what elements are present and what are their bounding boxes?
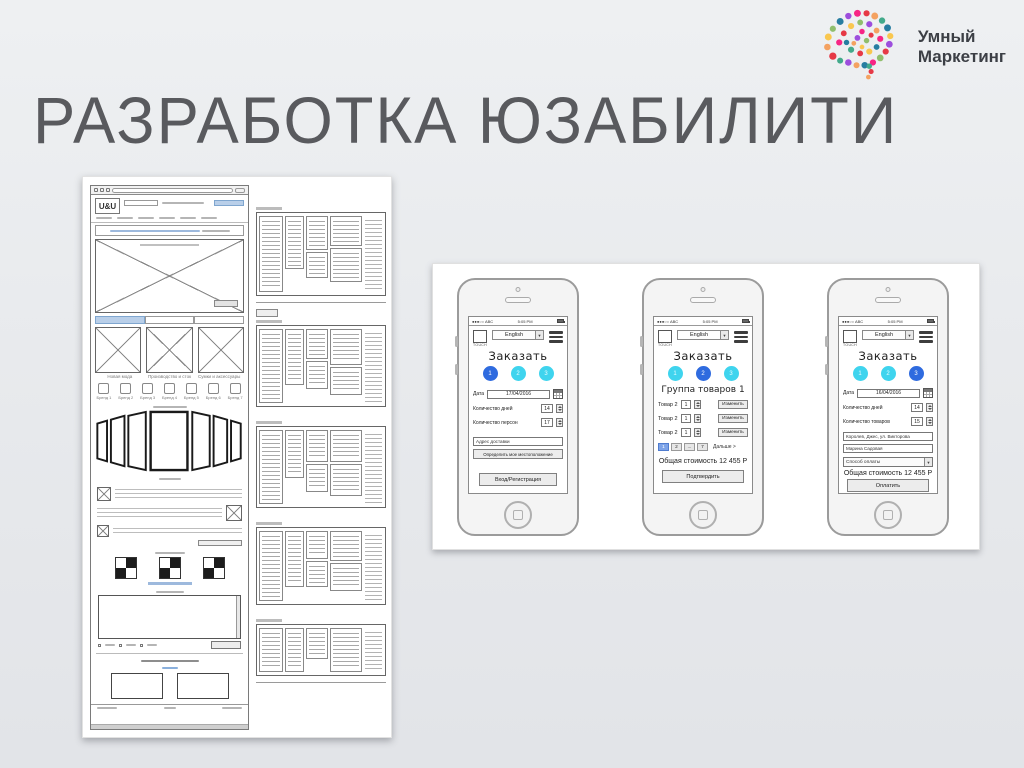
logo-box <box>843 330 857 343</box>
browser-statusbar <box>91 724 248 729</box>
volume-button <box>455 364 458 375</box>
stepper-control[interactable] <box>926 417 933 426</box>
nav-item[interactable] <box>180 217 196 219</box>
days-input[interactable]: 14 <box>911 403 923 412</box>
text-lines-placeholder <box>113 528 242 535</box>
stack-placeholder <box>330 531 362 601</box>
lines-placeholder <box>364 628 383 672</box>
hero-image-placeholder <box>95 239 244 313</box>
thumbnail-placeholder <box>97 525 109 537</box>
thumbnail-placeholder <box>97 487 111 501</box>
menu-icon[interactable] <box>734 330 748 343</box>
stepper-control[interactable] <box>556 404 563 413</box>
brand-item[interactable]: Бренд 5 <box>181 383 201 400</box>
app-logo: TOUCH <box>473 330 487 347</box>
stack-placeholder <box>330 430 362 504</box>
contact-blocks <box>91 673 248 699</box>
qty-input[interactable]: 1 <box>681 414 691 423</box>
list-placeholder <box>330 367 362 395</box>
language-select[interactable]: English ▼ <box>862 330 914 340</box>
section-label-line <box>91 550 248 555</box>
list-placeholder <box>259 531 283 601</box>
speaker-slot <box>690 297 716 303</box>
nav-item[interactable] <box>201 217 217 219</box>
section-label-line <box>91 404 248 409</box>
confirm-button[interactable]: Подтвердить <box>662 470 744 483</box>
brands-row: Бренд 1 Бренд 2 Бренд 3 Бренд 4 Бренд 5 … <box>94 383 245 400</box>
brand-logo-placeholder <box>142 383 153 394</box>
image-caption: Новая мода <box>95 374 145 379</box>
product-label: Товар 2 <box>658 430 678 436</box>
chevron-down-icon: ▼ <box>535 331 543 339</box>
change-button[interactable]: Изменить <box>718 414 748 423</box>
brand-name-line1: Умный <box>918 27 1006 47</box>
speaker-slot <box>875 297 901 303</box>
carrier-signal: ●●●○○ ABC <box>472 319 493 324</box>
step-circle[interactable]: 3 <box>539 366 554 381</box>
product-label: Товар 2 <box>658 402 678 408</box>
days-row: Количество дней 14 <box>473 404 563 413</box>
calendar-icon[interactable] <box>923 388 933 398</box>
volume-button <box>455 336 458 347</box>
pay-button[interactable]: Оплатить <box>847 479 929 492</box>
tab[interactable] <box>194 316 244 324</box>
step-circle[interactable]: 1 <box>668 366 683 381</box>
brand-name: Умный Маркетинг <box>918 27 1006 66</box>
brand-item[interactable]: Бренд 4 <box>160 383 180 400</box>
list-placeholder <box>285 216 304 269</box>
divider <box>256 302 386 303</box>
camera-dot <box>701 287 706 292</box>
nav-item[interactable] <box>96 217 112 219</box>
brand-name-line2: Маркетинг <box>918 47 1006 67</box>
product-row: Товар 2 1 Изменить <box>658 400 748 409</box>
lines-placeholder <box>364 329 383 403</box>
field-label: Количество персон <box>473 420 538 426</box>
home-button[interactable] <box>689 501 717 529</box>
step-circle[interactable]: 2 <box>511 366 526 381</box>
volume-button <box>825 336 828 347</box>
total-price: Общая стоимость 12 455 Р <box>843 470 933 477</box>
home-square-icon <box>698 510 708 520</box>
list-placeholder <box>259 329 283 403</box>
list-placeholder <box>330 216 362 246</box>
name-input[interactable]: Марина Садовая <box>843 444 933 453</box>
home-button[interactable] <box>504 501 532 529</box>
wireframe-sheet: U&U <box>82 176 392 738</box>
qty-input[interactable]: 1 <box>681 428 691 437</box>
tab-active[interactable] <box>95 316 145 324</box>
step-circle[interactable]: 2 <box>881 366 896 381</box>
stack-placeholder <box>306 329 328 403</box>
portfolio-thumbnails <box>91 557 248 579</box>
volume-button <box>640 364 643 375</box>
screen-title: Заказать <box>843 349 933 363</box>
step-indicator: 1 2 3 <box>843 366 933 381</box>
text-lines-placeholder <box>97 508 222 518</box>
date-row: Дата 16/04/2016 <box>843 388 933 398</box>
persons-input[interactable]: 17 <box>541 418 553 427</box>
nav-item[interactable] <box>159 217 175 219</box>
teaser-images <box>95 327 244 373</box>
wireframe-spec-column <box>256 177 386 739</box>
home-button[interactable] <box>874 501 902 529</box>
lines-placeholder <box>364 430 383 504</box>
banner-text-line <box>110 230 200 232</box>
list-placeholder <box>306 329 328 359</box>
more-button[interactable] <box>198 540 242 546</box>
chevron-down-icon: ▼ <box>720 331 728 339</box>
checkbox[interactable] <box>98 644 101 647</box>
persons-row: Количество персон 17 <box>473 418 563 427</box>
search-input[interactable] <box>124 200 158 206</box>
page-button[interactable]: 7 <box>697 443 708 451</box>
list-placeholder <box>330 628 362 672</box>
carrier-signal: ●●●○○ ABC <box>657 319 678 324</box>
language-value: English <box>863 332 905 338</box>
app-header: TOUCH English ▼ <box>843 330 933 347</box>
image-placeholder <box>95 327 141 373</box>
phone-mockup-step3: ●●●○○ ABC 5:05 PM TOUCH English ▼ Заказа… <box>827 278 949 536</box>
spec-block <box>256 522 386 605</box>
callback-link-line[interactable] <box>91 665 248 670</box>
list-placeholder <box>285 531 304 587</box>
brand-label: Бренд 5 <box>184 395 199 400</box>
checker-thumbnail <box>115 557 137 579</box>
screen-title: Заказать <box>473 349 563 363</box>
payment-method-value: Способ оплаты <box>844 460 924 465</box>
image-captions: Новая мода Производство и сток Сумки и а… <box>95 374 244 379</box>
spec-label-line <box>256 207 282 210</box>
checker-thumbnail <box>203 557 225 579</box>
stack-placeholder <box>306 430 328 504</box>
list-placeholder <box>306 252 328 278</box>
brand-logo-placeholder <box>98 383 109 394</box>
stepper-control[interactable] <box>556 418 563 427</box>
list-placeholder <box>259 216 283 292</box>
brand-label: Бренд 3 <box>140 395 155 400</box>
change-button[interactable]: Изменить <box>718 428 748 437</box>
brand-item[interactable]: Бренд 3 <box>138 383 158 400</box>
spec-label-line <box>256 421 282 424</box>
field-label: Количество дней <box>843 405 908 411</box>
window-control-icon <box>100 188 104 192</box>
list-placeholder <box>259 628 283 672</box>
date-input[interactable]: 17/04/2016 <box>487 390 550 399</box>
stack-placeholder <box>306 216 328 292</box>
list-placeholder <box>306 430 328 462</box>
field-label: Дата <box>843 390 854 396</box>
banner-text-line <box>202 230 230 232</box>
camera-dot <box>886 287 891 292</box>
payment-method-select[interactable]: Способ оплаты ▼ <box>843 457 933 467</box>
pagination: 1 2 ... 7 Дальше > <box>658 443 748 451</box>
days-input[interactable]: 14 <box>541 404 553 413</box>
brain-logo-icon <box>816 6 908 88</box>
window-control-icon <box>94 188 98 192</box>
language-select[interactable]: English ▼ <box>677 330 729 340</box>
carrier-signal: ●●●○○ ABC <box>842 319 863 324</box>
battery-icon <box>742 319 749 323</box>
list-placeholder <box>330 430 362 462</box>
brand-logo-placeholder <box>186 383 197 394</box>
contact-box <box>111 673 163 699</box>
logo-label: TOUCH <box>843 343 857 347</box>
login-area[interactable] <box>214 198 244 206</box>
spec-box <box>256 212 386 296</box>
spec-block <box>256 320 386 407</box>
address-input[interactable]: Королев, Джес, ул. Викторова <box>843 432 933 441</box>
brand-label: Бренд 4 <box>162 395 177 400</box>
items-count-input[interactable]: 15 <box>911 417 923 426</box>
spec-box <box>256 325 386 407</box>
lines-placeholder <box>364 216 383 292</box>
page-button-active[interactable]: 1 <box>658 443 669 451</box>
stepper-control[interactable] <box>694 414 701 423</box>
home-square-icon <box>883 510 893 520</box>
send-button[interactable] <box>211 641 241 649</box>
stack-placeholder <box>306 531 328 601</box>
clock: 5:05 PM <box>888 319 903 324</box>
image-caption: Сумки и аксессуары <box>194 374 244 379</box>
about-row <box>97 525 242 537</box>
spec-box <box>256 426 386 508</box>
clock: 5:05 PM <box>703 319 718 324</box>
site-logo: U&U <box>95 198 120 214</box>
list-placeholder <box>306 531 328 559</box>
status-bar: ●●●○○ ABC 5:05 PM <box>839 317 937 326</box>
logo-box <box>473 330 487 343</box>
address-bar[interactable] <box>112 188 233 193</box>
app-logo: TOUCH <box>843 330 857 347</box>
main-nav[interactable] <box>91 215 248 223</box>
list-placeholder <box>306 628 328 659</box>
brand-logo-placeholder <box>230 383 241 394</box>
category-tabs[interactable] <box>95 316 244 324</box>
phone-screen: ●●●○○ ABC 5:05 PM TOUCH English ▼ Заказа… <box>468 316 568 494</box>
footer-text-line <box>97 707 117 709</box>
list-placeholder <box>306 216 328 250</box>
thumbnail-placeholder <box>226 505 242 521</box>
camera-dot <box>516 287 521 292</box>
list-placeholder <box>306 561 328 587</box>
nav-item[interactable] <box>117 217 133 219</box>
product-row: Товар 2 1 Изменить <box>658 428 748 437</box>
stepper-control[interactable] <box>694 400 701 409</box>
step-circle-active[interactable]: 1 <box>483 366 498 381</box>
days-row: Количество дней 14 <box>843 403 933 412</box>
window-close-icon <box>106 188 110 192</box>
list-placeholder <box>285 329 304 385</box>
phone-screen: ●●●○○ ABC 5:05 PM TOUCH English ▼ Заказа… <box>838 316 938 494</box>
search-area[interactable] <box>124 198 158 206</box>
section-chip <box>256 309 278 317</box>
volume-button <box>825 364 828 375</box>
divider <box>256 682 386 683</box>
language-value: English <box>678 332 720 338</box>
date-row: Дата 17/04/2016 <box>473 389 563 399</box>
brand-logo-placeholder <box>208 383 219 394</box>
phone-mockup-step2: ●●●○○ ABC 5:05 PM TOUCH English ▼ Заказа… <box>642 278 764 536</box>
step-indicator: 1 2 3 <box>473 366 563 381</box>
image-placeholder <box>198 327 244 373</box>
brand-logo-placeholder <box>164 383 175 394</box>
login-button[interactable] <box>214 200 244 206</box>
checkbox[interactable] <box>140 644 143 647</box>
list-placeholder <box>330 248 362 282</box>
spec-box <box>256 527 386 605</box>
feedback-textarea[interactable] <box>98 595 241 639</box>
checkbox[interactable] <box>119 644 122 647</box>
hero-caption-line <box>140 244 199 246</box>
about-row <box>97 505 242 521</box>
step-indicator: 1 2 3 <box>658 366 748 381</box>
page-ellipsis: ... <box>684 443 695 451</box>
site-footer <box>91 704 248 711</box>
battery-icon <box>927 319 934 323</box>
login-register-button[interactable]: Вход/Регистрация <box>479 473 557 486</box>
step-circle[interactable]: 1 <box>853 366 868 381</box>
contact-box <box>177 673 229 699</box>
list-placeholder <box>259 430 283 504</box>
questions-heading-line <box>91 658 248 663</box>
status-bar: ●●●○○ ABC 5:05 PM <box>654 317 752 326</box>
brand-label: Бренд 2 <box>118 395 133 400</box>
lines-placeholder <box>364 531 383 601</box>
logo-label: TOUCH <box>658 343 672 347</box>
menu-icon[interactable] <box>919 330 933 343</box>
scrollbar[interactable] <box>236 596 240 638</box>
language-value: English <box>493 332 535 338</box>
step-circle-active[interactable]: 3 <box>909 366 924 381</box>
image-placeholder <box>146 327 192 373</box>
nav-item[interactable] <box>138 217 154 219</box>
see-all-link[interactable] <box>148 582 192 585</box>
spec-block <box>256 421 386 508</box>
divider <box>96 653 243 654</box>
logo-box <box>658 330 672 343</box>
go-button[interactable] <box>235 188 245 193</box>
brand-item[interactable]: Бренд 1 <box>94 383 114 400</box>
date-input[interactable]: 16/04/2016 <box>857 389 920 398</box>
checkbox-label-line <box>105 644 115 646</box>
feedback-label-line <box>91 589 248 594</box>
language-select[interactable]: English ▼ <box>492 330 544 340</box>
stack-placeholder <box>330 216 362 292</box>
brand-label: Бренд 7 <box>228 395 243 400</box>
list-placeholder <box>330 563 362 591</box>
stepper-control[interactable] <box>694 428 701 437</box>
stack-placeholder <box>330 329 362 403</box>
product-row: Товар 2 1 Изменить <box>658 414 748 423</box>
list-placeholder <box>306 361 328 389</box>
carousel-gallery[interactable] <box>93 410 247 472</box>
screen-title: Заказать <box>658 349 748 363</box>
checkbox-label-line <box>126 644 136 646</box>
spec-label-line <box>256 619 282 622</box>
list-placeholder <box>330 464 362 496</box>
items-count-row: Количество товаров 15 <box>843 417 933 426</box>
product-label: Товар 2 <box>658 416 678 422</box>
list-placeholder <box>285 430 304 478</box>
footer-text-line <box>222 707 242 709</box>
qty-input[interactable]: 1 <box>681 400 691 409</box>
stepper-control[interactable] <box>926 403 933 412</box>
status-bar: ●●●○○ ABC 5:05 PM <box>469 317 567 326</box>
next-page-link[interactable]: Дальше > <box>713 444 736 450</box>
mobile-mockups-card: ●●●○○ ABC 5:05 PM TOUCH English ▼ Заказа… <box>432 263 980 550</box>
home-square-icon <box>513 510 523 520</box>
app-header: TOUCH English ▼ <box>658 330 748 347</box>
spec-box <box>256 624 386 676</box>
phone-mockup-step1: ●●●○○ ABC 5:05 PM TOUCH English ▼ Заказа… <box>457 278 579 536</box>
list-placeholder <box>285 628 304 672</box>
volume-button <box>640 336 643 347</box>
total-price: Общая стоимость 12 455 Р <box>658 458 748 465</box>
phone-screen: ●●●○○ ABC 5:05 PM TOUCH English ▼ Заказа… <box>653 316 753 494</box>
page-button[interactable]: 2 <box>671 443 682 451</box>
logo-label: TOUCH <box>473 343 487 347</box>
brand-logo: Умный Маркетинг <box>816 6 1006 88</box>
app-header: TOUCH English ▼ <box>473 330 563 347</box>
step-circle-active[interactable]: 2 <box>696 366 711 381</box>
checkbox-label-line <box>147 644 157 646</box>
field-label: Количество товаров <box>843 419 908 425</box>
website-wireframe: U&U <box>90 185 249 730</box>
battery-icon <box>557 319 564 323</box>
spec-block <box>256 207 386 296</box>
hero-cta-button[interactable] <box>214 300 238 307</box>
brand-label: Бренд 1 <box>96 395 111 400</box>
speaker-slot <box>505 297 531 303</box>
field-label: Количество дней <box>473 406 538 412</box>
list-placeholder <box>306 464 328 492</box>
spec-label-line <box>256 320 282 323</box>
image-caption: Производство и сток <box>145 374 195 379</box>
app-logo: TOUCH <box>658 330 672 347</box>
change-button[interactable]: Изменить <box>718 400 748 409</box>
brand-label: Бренд 6 <box>206 395 221 400</box>
calendar-icon[interactable] <box>553 389 563 399</box>
list-placeholder <box>330 329 362 365</box>
brand-item[interactable]: Бренд 2 <box>116 383 136 400</box>
brand-item[interactable]: Бренд 7 <box>225 383 245 400</box>
tab[interactable] <box>145 316 195 324</box>
checker-thumbnail <box>159 557 181 579</box>
phone-number-placeholder <box>162 198 210 204</box>
page-title: РАЗРАБОТКА ЮЗАБИЛИТИ <box>33 82 898 158</box>
spec-block <box>256 619 386 676</box>
address-input[interactable]: Адрес доставки <box>473 437 563 446</box>
product-group-title: Группа товаров 1 <box>658 385 748 395</box>
about-section <box>91 481 248 537</box>
list-placeholder <box>330 531 362 561</box>
spec-label-line <box>256 522 282 525</box>
text-lines-placeholder <box>115 489 242 499</box>
about-row <box>97 487 242 501</box>
feedback-options <box>98 641 241 649</box>
brand-item[interactable]: Бренд 6 <box>203 383 223 400</box>
browser-titlebar <box>91 186 248 195</box>
menu-icon[interactable] <box>549 330 563 343</box>
site-header: U&U <box>91 195 248 215</box>
locate-me-button[interactable]: Определить мое местоположение <box>473 449 563 459</box>
clock: 5:05 PM <box>518 319 533 324</box>
brand-logo-placeholder <box>120 383 131 394</box>
step-circle[interactable]: 3 <box>724 366 739 381</box>
field-label: Дата <box>473 391 484 397</box>
promo-banner <box>95 225 244 236</box>
